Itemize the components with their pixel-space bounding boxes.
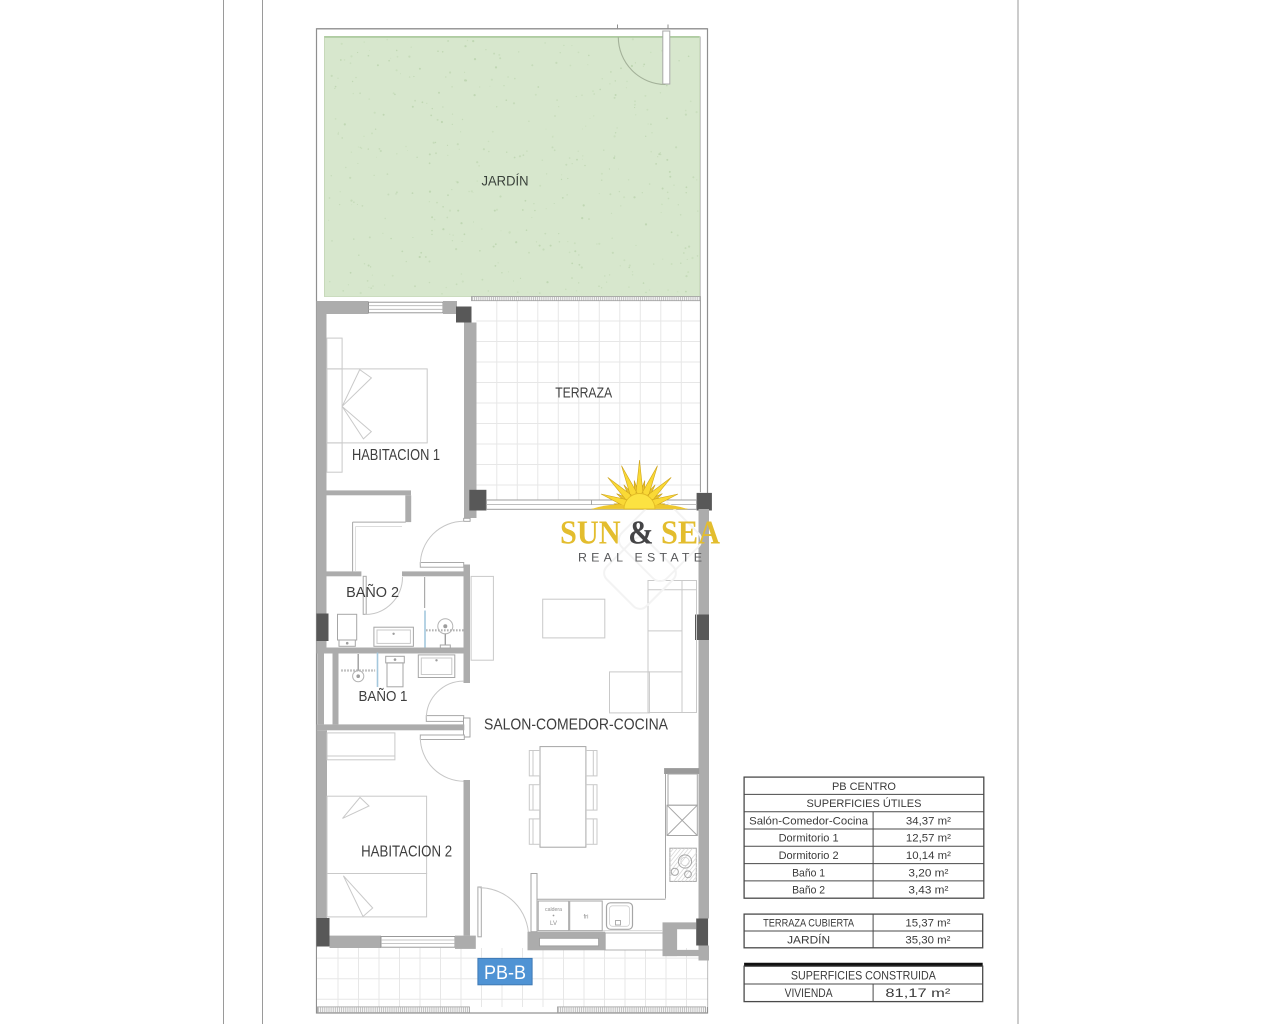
svg-text:caldera: caldera — [545, 907, 562, 913]
svg-text:3,20 m²: 3,20 m² — [908, 867, 948, 879]
svg-text:81,17 m²: 81,17 m² — [885, 986, 950, 1000]
svg-text:Dormitorio 1: Dormitorio 1 — [779, 833, 839, 845]
svg-text:10,14 m²: 10,14 m² — [906, 850, 951, 862]
svg-text:VIVIENDA: VIVIENDA — [785, 986, 834, 1000]
svg-text:REAL ESTATE: REAL ESTATE — [578, 551, 702, 565]
svg-text:SUPERFICIES CONSTRUIDA: SUPERFICIES CONSTRUIDA — [791, 969, 937, 983]
svg-text:PB CENTRO: PB CENTRO — [832, 781, 896, 793]
svg-text:SUN & SEA: SUN & SEA — [560, 515, 720, 552]
svg-text:TERRAZA: TERRAZA — [555, 385, 612, 402]
svg-text:Baño 2: Baño 2 — [792, 885, 825, 897]
svg-text:35,30 m²: 35,30 m² — [905, 934, 950, 946]
svg-text:Dormitorio 2: Dormitorio 2 — [779, 850, 839, 862]
svg-text:SUPERFICIES ÚTILES: SUPERFICIES ÚTILES — [806, 797, 921, 810]
svg-text:15,37 m²: 15,37 m² — [905, 917, 950, 929]
svg-text:PB-B: PB-B — [484, 962, 526, 984]
svg-text:SALON-COMEDOR-COCINA: SALON-COMEDOR-COCINA — [484, 717, 669, 734]
svg-text:3,43 m²: 3,43 m² — [908, 885, 948, 897]
svg-text:fri: fri — [584, 915, 589, 921]
svg-text:JARDÍN: JARDÍN — [482, 173, 529, 190]
svg-text:TERRAZA CUBIERTA: TERRAZA CUBIERTA — [763, 917, 855, 929]
svg-text:Salón-Comedor-Cocina: Salón-Comedor-Cocina — [749, 815, 869, 827]
svg-text:HABITACION 1: HABITACION 1 — [352, 447, 440, 464]
svg-text:BAÑO 1: BAÑO 1 — [359, 688, 408, 705]
svg-text:LV: LV — [550, 921, 557, 927]
svg-text:HABITACION 2: HABITACION 2 — [361, 843, 452, 860]
svg-text:12,57 m²: 12,57 m² — [906, 833, 951, 845]
svg-text:Baño 1: Baño 1 — [792, 867, 825, 879]
svg-text:BAÑO 2: BAÑO 2 — [346, 584, 399, 601]
svg-text:JARDÍN: JARDÍN — [787, 933, 830, 946]
svg-text:34,37 m²: 34,37 m² — [906, 815, 951, 827]
